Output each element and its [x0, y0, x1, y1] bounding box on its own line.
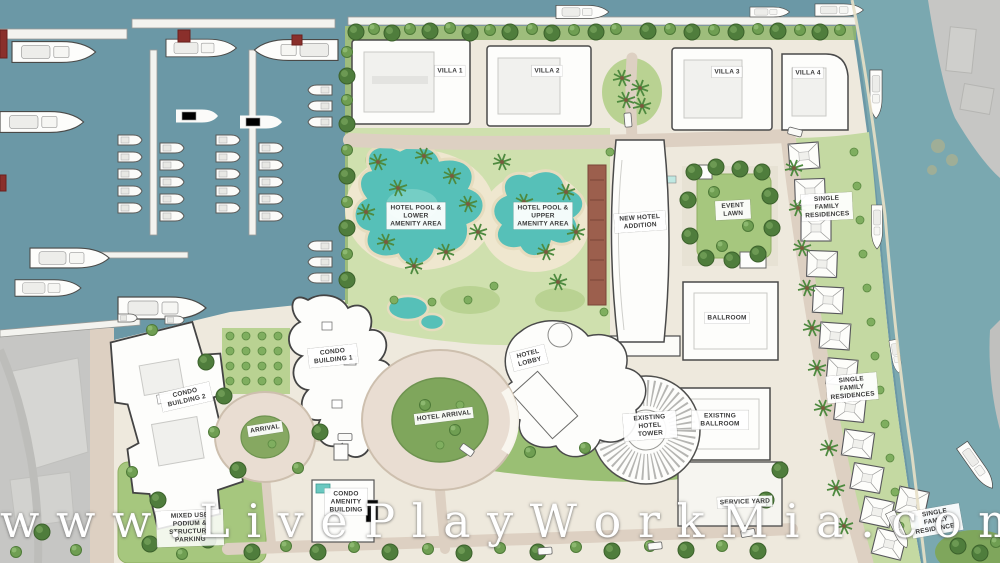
label-villa-2: VILLA 2 [532, 65, 562, 76]
red-boat [0, 30, 7, 58]
label-villa-4: VILLA 4 [793, 67, 823, 78]
villa-3-building [672, 48, 772, 130]
villa-4-building [782, 54, 848, 130]
label-hotel-pool-lower: HOTEL POOL & LOWER AMENITY AREA [387, 202, 446, 229]
watermark: w w w . L i v e P l a y W o r k M i a . … [0, 494, 1000, 548]
label-villa-1: VILLA 1 [435, 65, 465, 76]
villa-1-building [352, 40, 470, 124]
label-new-hotel-addition: NEW HOTEL ADDITION [614, 211, 666, 234]
villa-2-building [487, 46, 591, 126]
site-plan-rendering: VILLA 1 VILLA 2 VILLA 3 VILLA 4 HOTEL PO… [0, 0, 1000, 563]
label-hotel-pool-upper: HOTEL POOL & UPPER AMENITY AREA [514, 202, 573, 229]
label-existing-ballroom: EXISTING BALLROOM [692, 410, 749, 429]
label-ballroom: BALLROOM [705, 312, 749, 323]
label-event-lawn: EVENT LAWN [715, 199, 751, 220]
label-single-family-residences-mid: SINGLE FAMILY RESIDENCES [825, 372, 878, 404]
site-plan-canvas [0, 0, 1000, 563]
label-single-family-residences-north: SINGLE FAMILY RESIDENCES [801, 192, 853, 222]
label-villa-3: VILLA 3 [712, 66, 742, 77]
label-existing-hotel-tower: EXISTING HOTEL TOWER [623, 410, 678, 441]
